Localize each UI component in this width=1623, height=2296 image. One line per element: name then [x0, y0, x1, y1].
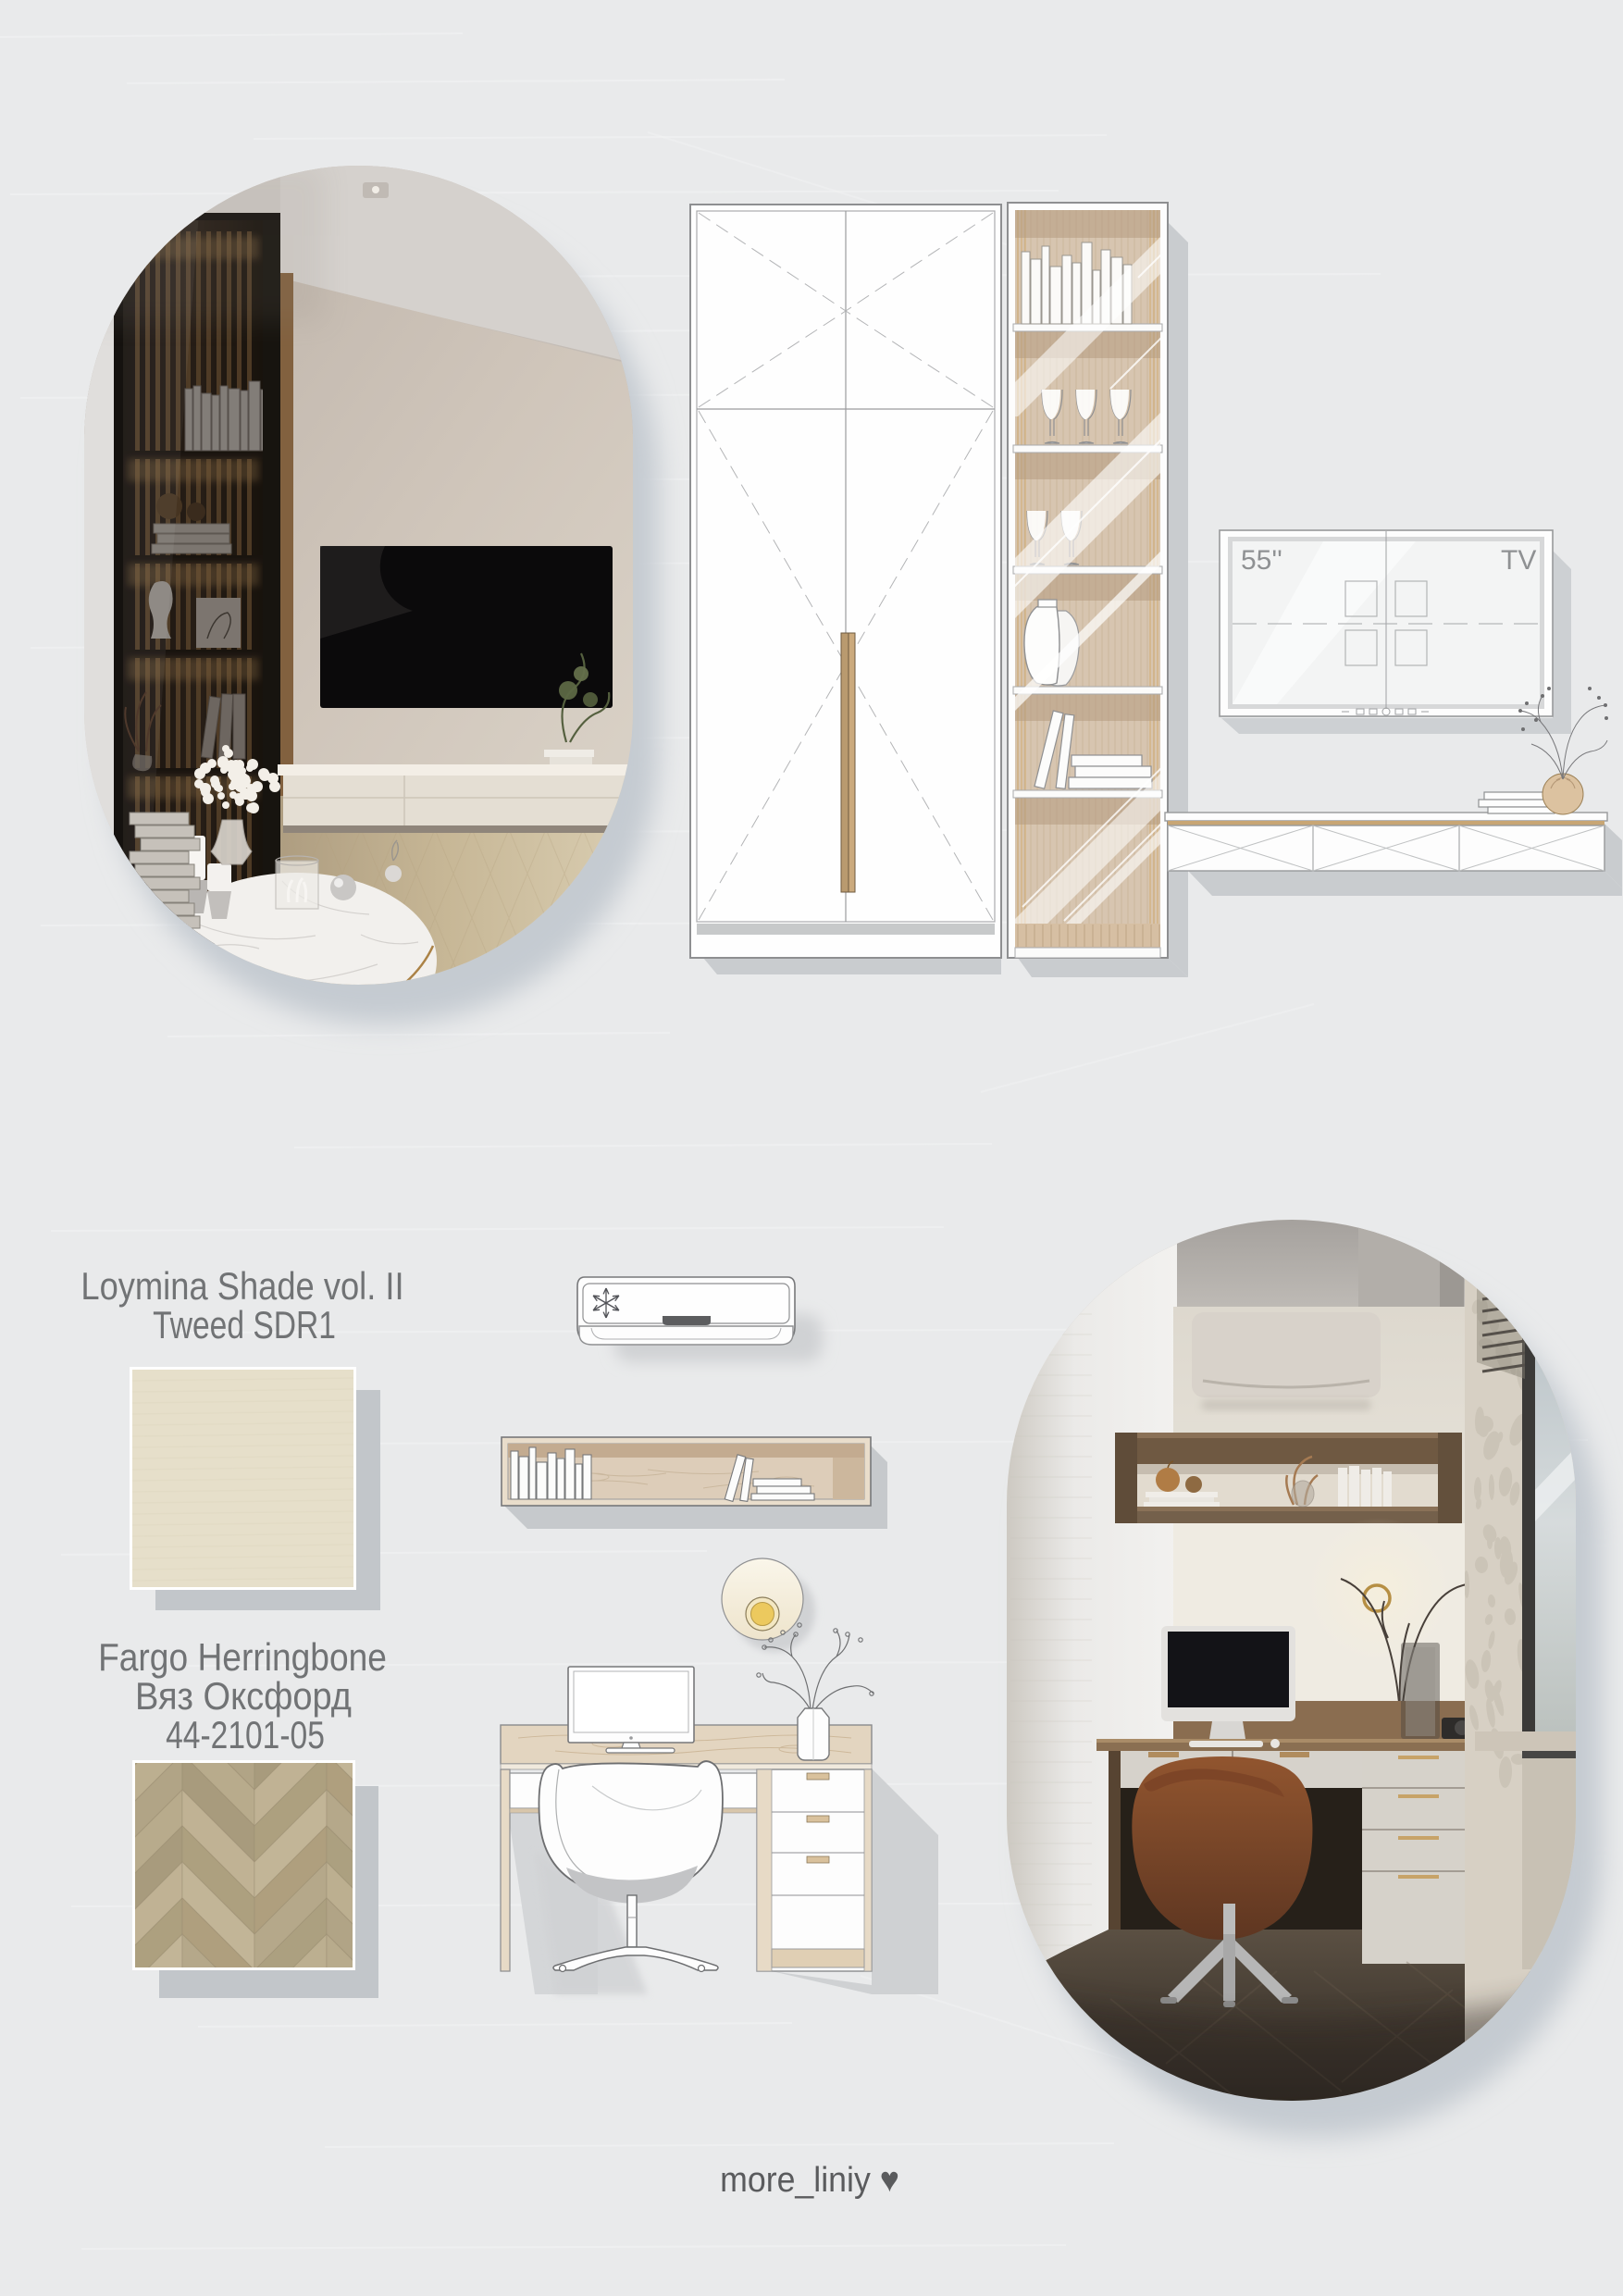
svg-text:Fargo Herringbone: Fargo Herringbone	[98, 1636, 387, 1680]
svg-text:Loymina Shade vol. II: Loymina Shade vol. II	[81, 1265, 403, 1309]
svg-text:55'': 55''	[1241, 545, 1282, 576]
svg-text:Вяз Оксфорд: Вяз Оксфорд	[135, 1675, 352, 1718]
svg-text:44-2101-05: 44-2101-05	[166, 1715, 325, 1757]
svg-text:TV: TV	[1501, 545, 1536, 576]
svg-text:more_liniy ♥: more_liniy ♥	[720, 2160, 899, 2199]
svg-text:Tweed SDR1: Tweed SDR1	[153, 1305, 336, 1347]
